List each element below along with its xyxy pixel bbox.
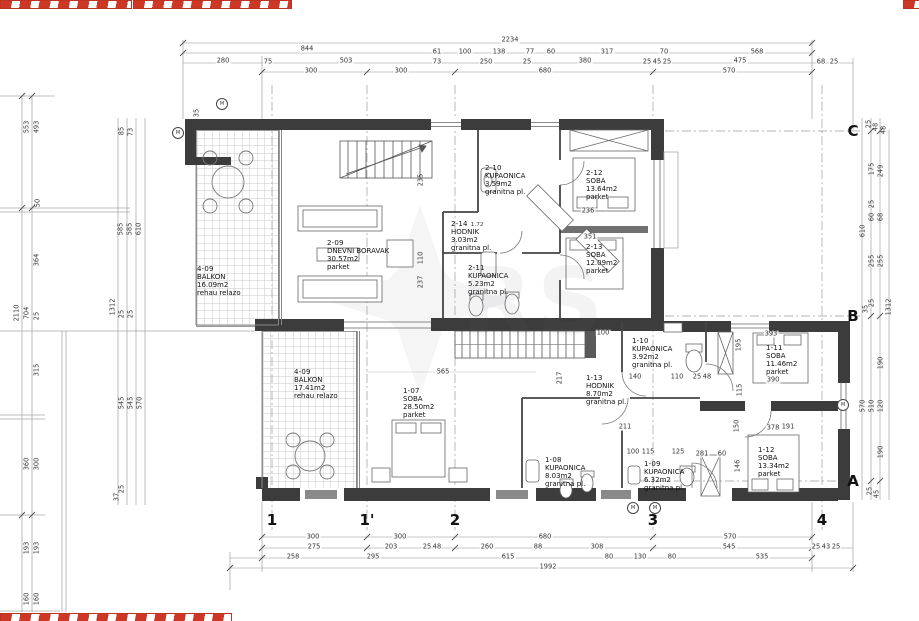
dimension-label: 75 <box>263 59 273 66</box>
dimension-label: 100 <box>626 449 641 456</box>
dimension-label: 190 <box>878 356 885 371</box>
grid-marker: M <box>627 502 639 514</box>
room-label: 1-10KUPAONICA3.92m2granitna pl. <box>632 337 672 369</box>
room-label: 4-09BALKON17.41m2rehau relazo <box>294 368 338 400</box>
dimension-label: 60 <box>546 49 556 56</box>
dimension-label: 25 <box>662 59 672 66</box>
dimension-label: 100 <box>458 49 473 56</box>
dimension-label: 25 <box>119 309 126 319</box>
dimension-label: 610 <box>136 222 143 237</box>
grid-marker: M <box>216 98 228 110</box>
room-label: 2-13SOBA12.09m2parket <box>586 243 617 275</box>
room-label: 1-08KUPAONICA8.03m2granitna pl. <box>545 456 585 488</box>
dimension-label: 475 <box>733 58 748 65</box>
room-label: 1-12SOBA13.34m2parket <box>758 446 789 478</box>
dimension-label: 300 <box>34 457 41 472</box>
dimension-label: 160 <box>34 592 41 607</box>
dimension-label: 146 <box>735 459 742 474</box>
dimension-label: 110 <box>418 251 425 266</box>
dimension-label: 570 <box>722 68 737 75</box>
dimension-label: 260 <box>480 544 495 551</box>
dimension-label: 585 <box>118 222 125 237</box>
dimension-label: 255 <box>869 254 876 269</box>
dimension-label: 60 <box>717 451 727 458</box>
dimension-label: 364 <box>34 253 41 268</box>
dimension-label: 25 <box>692 374 702 381</box>
dimension-label: 235 <box>418 173 425 188</box>
dimension-label: 1312 <box>886 298 893 317</box>
balcony-tables <box>203 151 334 479</box>
dimension-label: 193 <box>24 541 31 556</box>
dimension-label: 60 <box>869 212 876 222</box>
dimension-label: 50 <box>35 198 42 208</box>
dimension-label: 25 <box>422 544 432 551</box>
dimension-label: 25 <box>34 311 41 321</box>
dimension-label: 68 <box>878 212 885 222</box>
grid-row-label: C <box>847 122 858 140</box>
dimension-label: 510 <box>869 399 876 414</box>
dimension-label: 110 <box>670 374 685 381</box>
room-label: 1-07SOBA28.50m2parket <box>403 387 434 419</box>
room-label: 4-09BALKON16.09m2rehau relazo <box>197 265 241 297</box>
room-label: 2-10KUPAONICA3.59m2granitna pl. <box>485 164 525 196</box>
dimension-label: 680 <box>538 534 553 541</box>
dimension-label: 565 <box>436 369 451 376</box>
grid-marker: M <box>837 399 849 411</box>
dimension-label: 190 <box>878 445 885 460</box>
dimension-label: 25 <box>642 59 652 66</box>
dimension-label: 280 <box>216 58 231 65</box>
dimension-label: 115 <box>737 383 744 398</box>
dimension-label: 25 <box>831 544 841 551</box>
dimension-label: 61 <box>432 49 442 56</box>
dimension-label: 88 <box>533 544 543 551</box>
dimension-label: 140 <box>628 374 643 381</box>
dimension-label: 130 <box>633 554 648 561</box>
dimension-label: 48 <box>702 374 712 381</box>
dimension-label: 300 <box>304 68 319 75</box>
room-label: 2-09DNEVNI BORAVAK30.57m2parket <box>327 239 389 271</box>
dimension-label: 1992 <box>539 564 558 571</box>
dimension-label: 680 <box>538 68 553 75</box>
dimension-label: 300 <box>393 534 408 541</box>
dimension-label: 25 <box>829 59 839 66</box>
dimension-label: 300 <box>394 68 409 75</box>
dimension-label: 610 <box>860 224 867 239</box>
grid-row-label: B <box>847 307 858 325</box>
dimension-label: 393 <box>764 331 779 338</box>
dimension-label: 211 <box>618 424 633 431</box>
dimension-label: 570 <box>137 396 144 411</box>
grid-marker: M <box>172 127 184 139</box>
dimension-label: 249 <box>878 164 885 179</box>
dimension-label: 80 <box>604 554 614 561</box>
grid-column-label: 1' <box>359 511 374 529</box>
dimension-label: 80 <box>667 554 677 561</box>
dimension-label: 150 <box>734 419 741 434</box>
dimension-label: 35 <box>194 108 201 118</box>
dimension-label: 25 <box>869 199 876 209</box>
dimension-label: 160 <box>24 592 31 607</box>
dimension-label: 844 <box>300 46 315 53</box>
floor-plan-sheet: 4-09BALKON16.09m2rehau relazo2-09DNEVNI … <box>0 0 919 621</box>
dimension-label: 37 <box>114 492 121 502</box>
room-label: 1-11SOBA11.46m2parket <box>766 344 797 376</box>
dimension-label: 351 <box>583 234 598 241</box>
sheet-margin-lines <box>0 96 255 612</box>
dimension-label: 2110 <box>14 304 21 323</box>
dimension-label: 236 <box>581 208 596 215</box>
dimension-label: 85 <box>119 126 126 136</box>
dimension-label: 100 <box>596 330 611 337</box>
dimension-label: 193 <box>34 541 41 556</box>
dimension-label: 191 <box>781 424 796 431</box>
dimension-label: 48 <box>873 122 880 132</box>
dimension-label: 360 <box>24 457 31 472</box>
dimension-label: 175 <box>869 162 876 177</box>
room-label: 2-11KUPAONICA5.23m2granitna pl. <box>468 264 508 296</box>
dimension-label: 77 <box>525 49 535 56</box>
dimension-label: 237 <box>418 275 425 290</box>
dimension-label: 25 <box>128 309 135 319</box>
dimension-label: 120 <box>878 399 885 414</box>
dimension-label: 535 <box>755 554 770 561</box>
grid-row-label: A <box>847 472 859 490</box>
dimension-label: 300 <box>306 534 321 541</box>
dimension-label: 73 <box>432 59 442 66</box>
dimension-label: 203 <box>384 544 399 551</box>
dimension-label: 568 <box>750 49 765 56</box>
dimension-label: 704 <box>24 306 31 321</box>
dimension-label: 68 <box>816 59 826 66</box>
room-label: 2-141.72HODNIK3.03m2granitna pl. <box>451 220 491 252</box>
grid-column-label: 2 <box>450 511 460 529</box>
dimension-label: 1312 <box>110 298 117 317</box>
dimension-label: 585 <box>127 222 134 237</box>
room-label: 1-09KUPAONICA6.32m2granitna pl. <box>644 460 684 492</box>
dimension-label: 275 <box>307 544 322 551</box>
dimension-label: 493 <box>34 120 41 135</box>
dimension-label: 570 <box>723 534 738 541</box>
dimension-label: 380 <box>578 58 593 65</box>
dimension-label: 503 <box>339 58 354 65</box>
dimension-label: 25 <box>811 544 821 551</box>
dimension-label: 125 <box>671 449 686 456</box>
dimension-label: 570 <box>860 399 867 414</box>
staircase-mid <box>455 331 585 358</box>
dimension-label: 615 <box>501 554 516 561</box>
dimension-label: 553 <box>24 120 31 135</box>
dimension-label: 250 <box>479 59 494 66</box>
dimension-label: 45 <box>652 59 662 66</box>
grid-column-label: 4 <box>817 511 827 529</box>
dimension-label: 138 <box>492 49 507 56</box>
dimension-label: 217 <box>557 371 564 386</box>
dimension-label: 545 <box>128 396 135 411</box>
dimension-label: 48 <box>432 544 442 551</box>
dimension-label: 545 <box>722 544 737 551</box>
dimension-label: 317 <box>600 49 615 56</box>
dimension-label: 308 <box>590 544 605 551</box>
dimension-label: 378 <box>766 425 781 432</box>
dimension-label: 315 <box>34 363 41 378</box>
dimension-label: 195 <box>736 338 743 353</box>
dimension-label: 281 <box>695 451 710 458</box>
room-label: 1-13HODNIK8.70m2granitna pl. <box>586 374 626 406</box>
room-label: 2-12SOBA13.64m2parket <box>586 169 617 201</box>
dimension-label: 70 <box>659 49 669 56</box>
dimension-label: 258 <box>286 554 301 561</box>
dimension-label: 545 <box>119 396 126 411</box>
dimension-label: 48 <box>881 125 888 135</box>
dimension-label: 295 <box>366 554 381 561</box>
dimension-label: 255 <box>878 254 885 269</box>
dimension-label: 2234 <box>501 37 520 44</box>
dimension-label: 43 <box>821 544 831 551</box>
dimension-label: 25 <box>522 59 532 66</box>
dimension-label: 25 <box>869 298 876 308</box>
grid-marker: M <box>649 502 661 514</box>
dimension-label: 73 <box>128 127 135 137</box>
grid-column-label: 1 <box>267 511 277 529</box>
dimension-label: 45 <box>874 489 881 499</box>
dimension-label: 390 <box>766 377 781 384</box>
dimension-label: 115 <box>641 449 656 456</box>
